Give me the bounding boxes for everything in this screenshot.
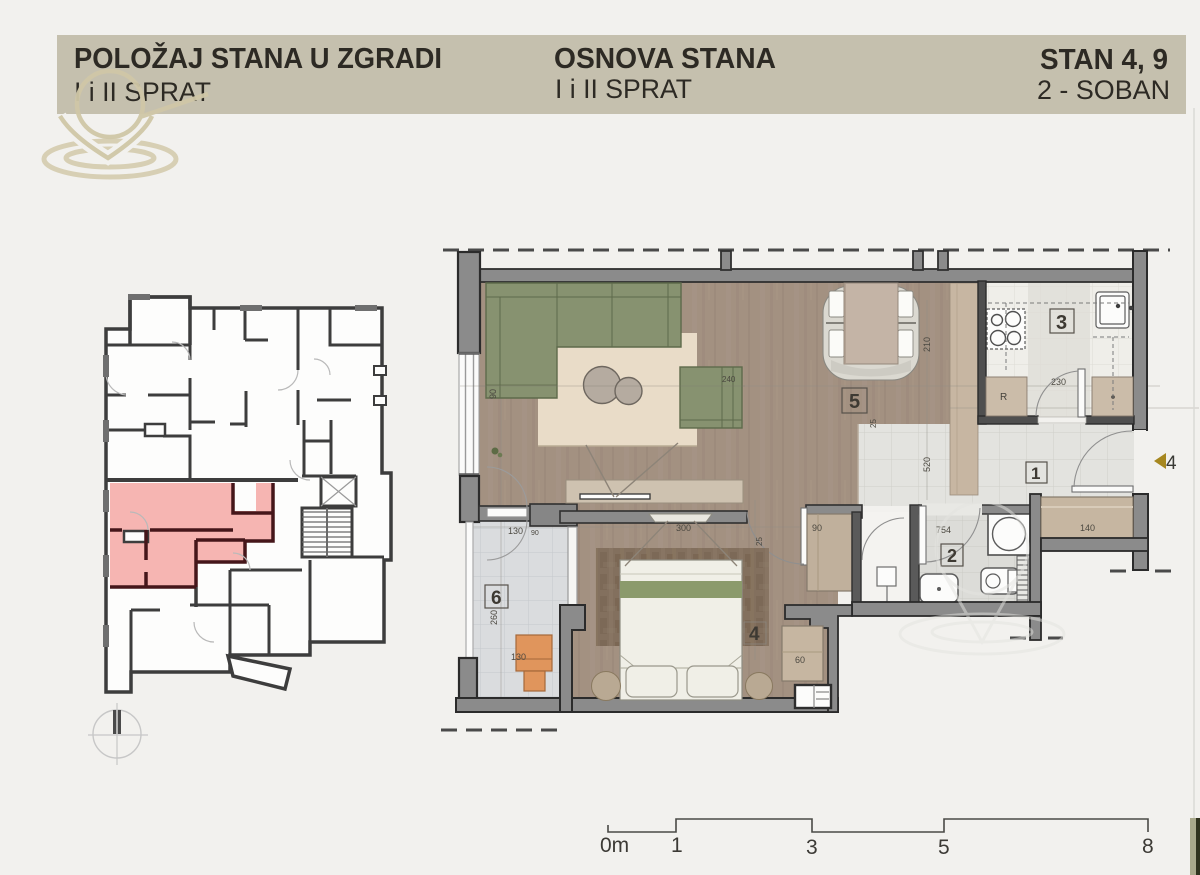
svg-text:260: 260	[489, 610, 499, 625]
svg-text:8: 8	[1142, 835, 1154, 858]
svg-text:210: 210	[922, 337, 932, 352]
svg-text:3: 3	[806, 836, 818, 859]
svg-text:STAN 4, 9: STAN 4, 9	[1040, 44, 1168, 76]
svg-text:2: 2	[947, 546, 957, 566]
svg-text:5: 5	[938, 836, 950, 859]
svg-text:POLOŽAJ STANA U ZGRADI: POLOŽAJ STANA U ZGRADI	[74, 41, 442, 75]
svg-text:130: 130	[511, 652, 526, 662]
svg-text:230: 230	[1051, 377, 1066, 387]
svg-text:140: 140	[1080, 523, 1095, 533]
svg-text:300: 300	[676, 523, 691, 533]
svg-text:520: 520	[922, 457, 932, 472]
svg-text:25: 25	[755, 537, 764, 546]
svg-text:90: 90	[488, 389, 498, 399]
svg-text:4: 4	[749, 624, 760, 645]
svg-text:1: 1	[671, 834, 683, 857]
svg-text:130: 130	[508, 526, 523, 536]
svg-text:25: 25	[869, 419, 878, 428]
svg-text:90: 90	[812, 523, 822, 533]
svg-text:3: 3	[1056, 312, 1067, 334]
svg-text:1: 1	[1031, 464, 1040, 483]
svg-text:5: 5	[849, 391, 860, 413]
svg-text:240: 240	[722, 375, 736, 384]
svg-text:6: 6	[491, 588, 502, 609]
svg-text:60: 60	[795, 655, 805, 665]
svg-text:4: 4	[1166, 453, 1177, 474]
svg-text:90: 90	[531, 530, 539, 537]
svg-text:0m: 0m	[600, 834, 629, 857]
svg-text:2 - SOBAN: 2 - SOBAN	[1037, 75, 1170, 105]
svg-text:I i II SPRAT: I i II SPRAT	[555, 74, 692, 104]
svg-text:OSNOVA STANA: OSNOVA STANA	[554, 43, 776, 75]
svg-text:R: R	[1000, 392, 1007, 403]
